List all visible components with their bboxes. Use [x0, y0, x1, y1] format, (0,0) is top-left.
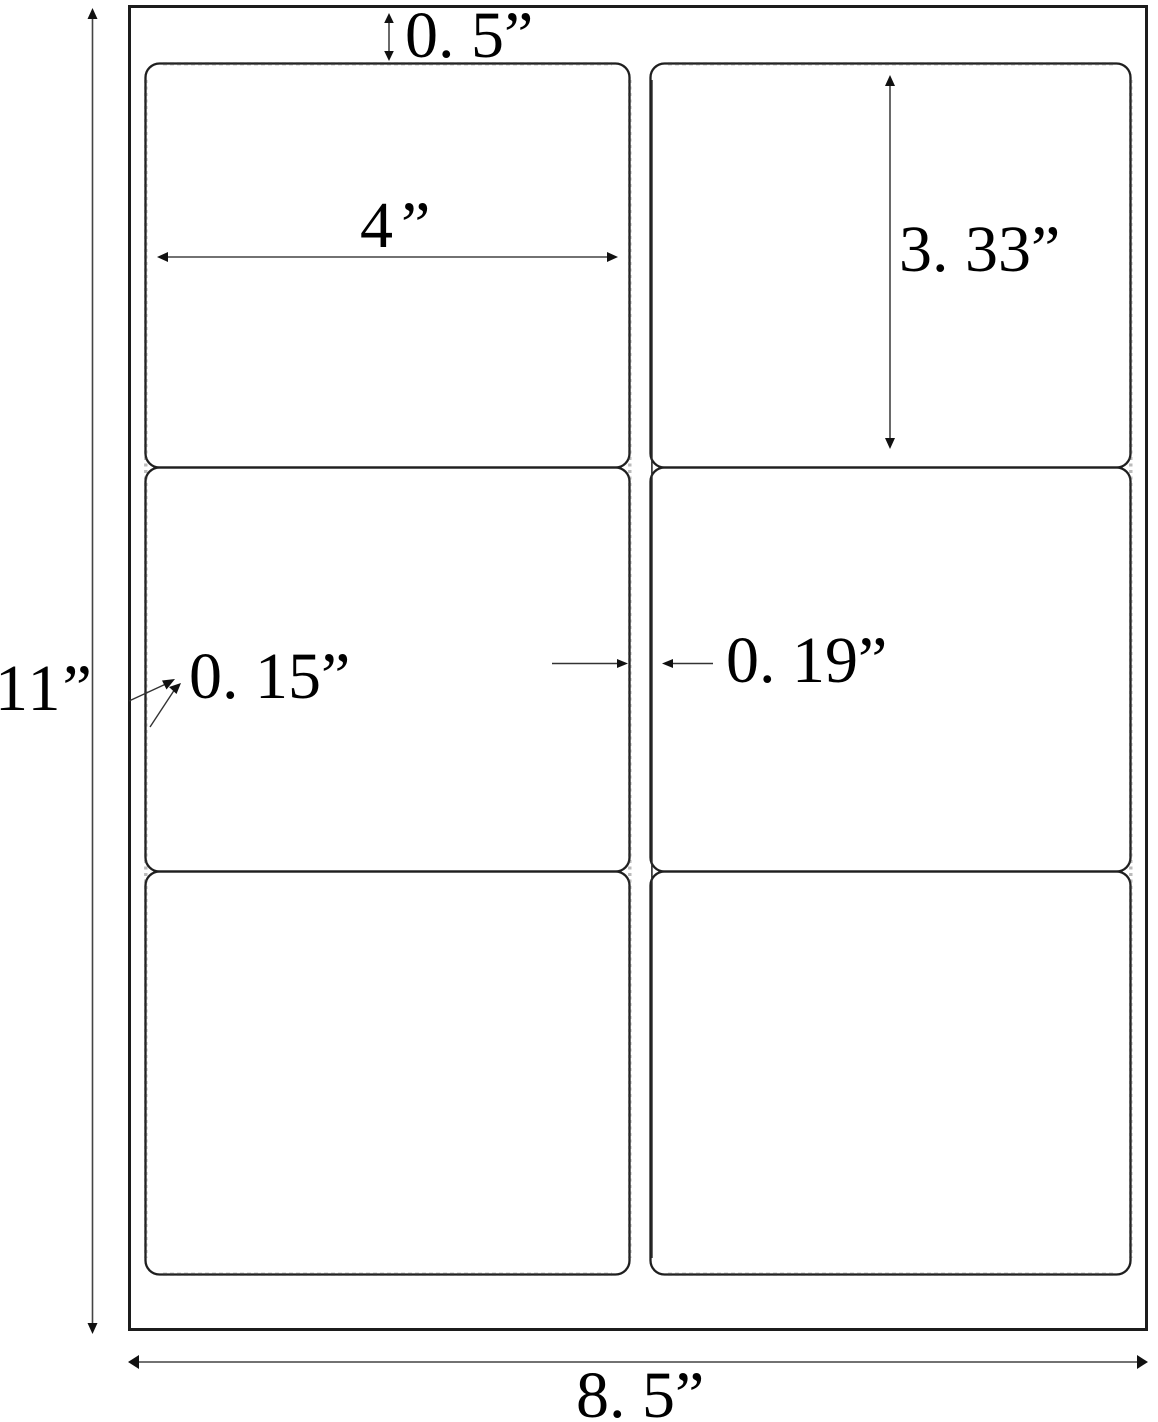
svg-text:0. 5”: 0. 5” — [405, 0, 533, 72]
svg-text:3. 33”: 3. 33” — [899, 213, 1060, 286]
svg-text:8. 5”: 8. 5” — [576, 1359, 704, 1422]
svg-text:4”: 4” — [360, 189, 438, 262]
svg-text:0. 19”: 0. 19” — [726, 624, 887, 697]
svg-text:11”: 11” — [0, 652, 94, 725]
svg-text:0. 15”: 0. 15” — [189, 640, 350, 713]
